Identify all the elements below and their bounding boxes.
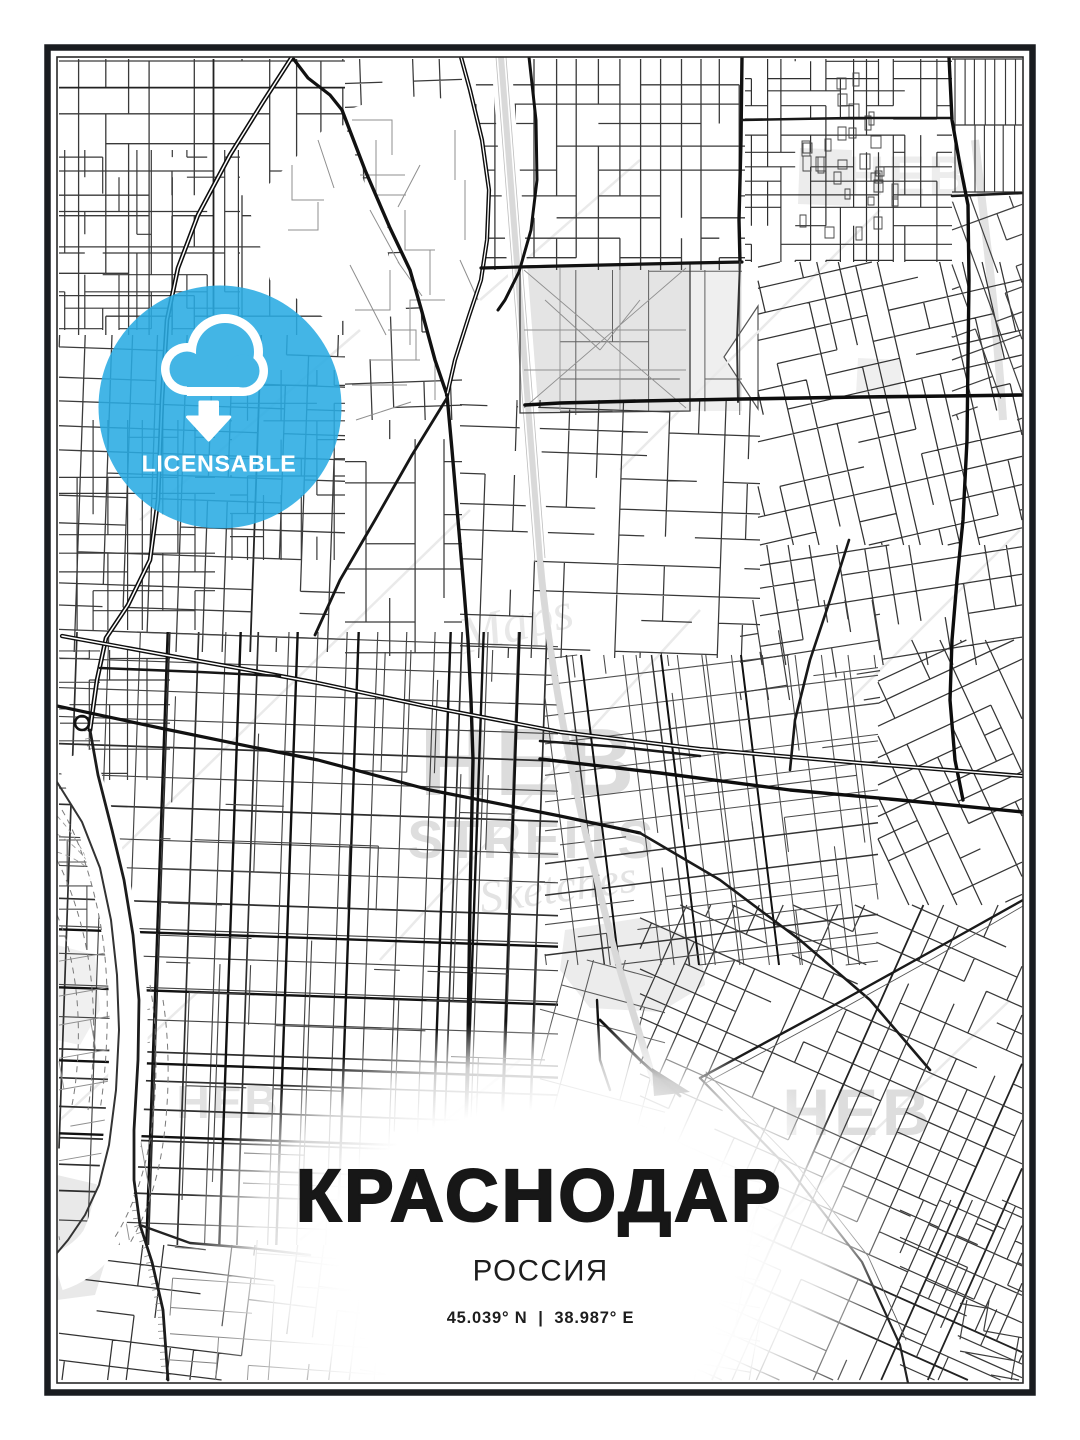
svg-text:РОССИЯ: РОССИЯ <box>473 1254 609 1287</box>
svg-text:КРАСНОДАР: КРАСНОДАР <box>296 1154 784 1237</box>
svg-text:HEB: HEB <box>844 144 971 207</box>
svg-text:LICENSABLE: LICENSABLE <box>142 451 297 477</box>
svg-text:45.039° N | 38.987° E: 45.039° N | 38.987° E <box>447 1309 635 1327</box>
